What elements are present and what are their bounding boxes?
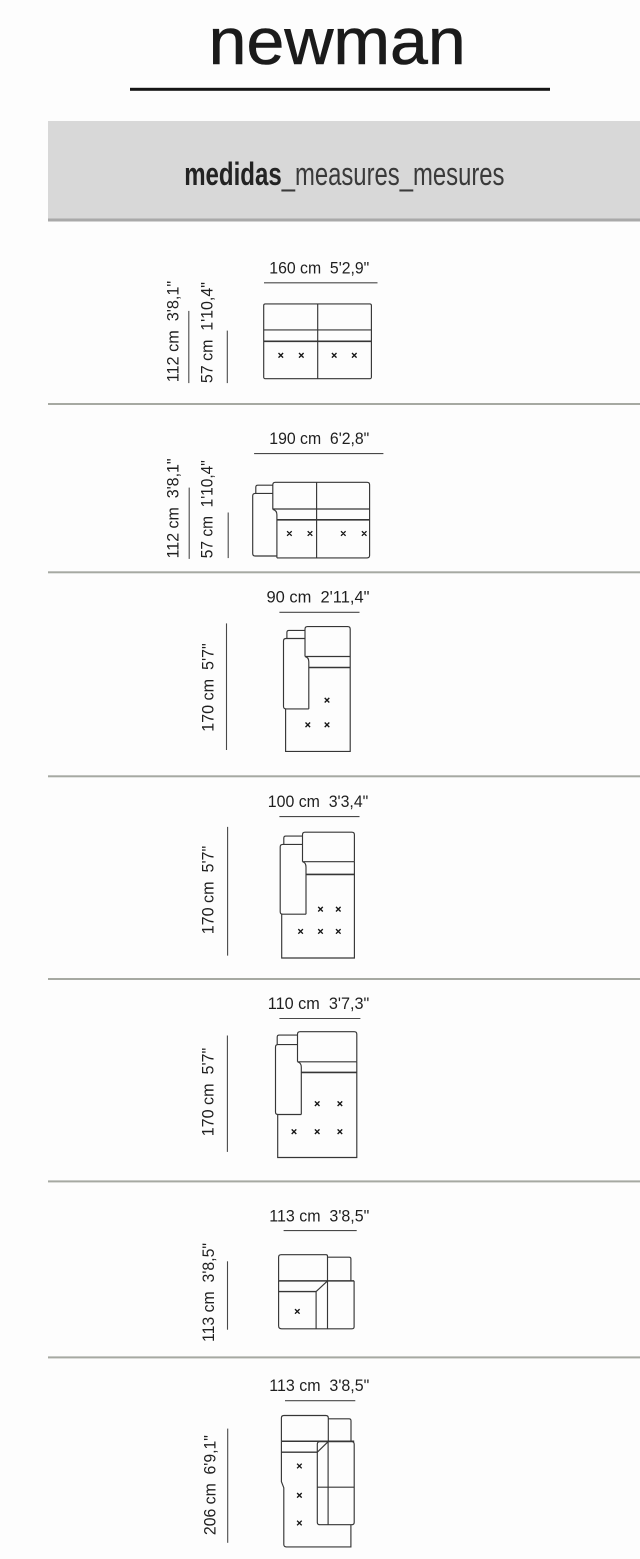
svg-text:113 cm 3'8,5": 113 cm 3'8,5" bbox=[200, 1243, 218, 1342]
svg-text:_measures_mesures: _measures_mesures bbox=[281, 156, 505, 192]
svg-text:170 cm 5'7": 170 cm 5'7" bbox=[200, 643, 218, 732]
svg-text:113 cm 3'8,5": 113 cm 3'8,5" bbox=[269, 1208, 369, 1226]
svg-text:57 cm 1'10,4": 57 cm 1'10,4" bbox=[198, 282, 216, 383]
svg-text:90 cm 2'11,4": 90 cm 2'11,4" bbox=[267, 589, 370, 607]
svg-text:170 cm 5'7": 170 cm 5'7" bbox=[200, 1048, 218, 1137]
svg-text:110 cm 3'7,3": 110 cm 3'7,3" bbox=[268, 995, 370, 1013]
svg-text:160 cm 5'2,9": 160 cm 5'2,9" bbox=[269, 259, 369, 277]
svg-text:113 cm 3'8,5": 113 cm 3'8,5" bbox=[269, 1377, 369, 1395]
svg-text:190 cm 6'2,8": 190 cm 6'2,8" bbox=[269, 430, 369, 448]
svg-text:206 cm 6'9,1": 206 cm 6'9,1" bbox=[202, 1435, 220, 1535]
svg-text:medidas: medidas bbox=[184, 156, 282, 192]
svg-text:170 cm 5'7": 170 cm 5'7" bbox=[200, 846, 218, 935]
svg-text:100 cm 3'3,4": 100 cm 3'3,4" bbox=[268, 793, 369, 811]
svg-text:112 cm 3'8,1": 112 cm 3'8,1" bbox=[164, 458, 182, 558]
svg-text:112 cm 3'8,1": 112 cm 3'8,1" bbox=[164, 281, 182, 383]
svg-text:57 cm 1'10,4": 57 cm 1'10,4" bbox=[198, 460, 216, 558]
svg-text:newman: newman bbox=[209, 5, 466, 78]
